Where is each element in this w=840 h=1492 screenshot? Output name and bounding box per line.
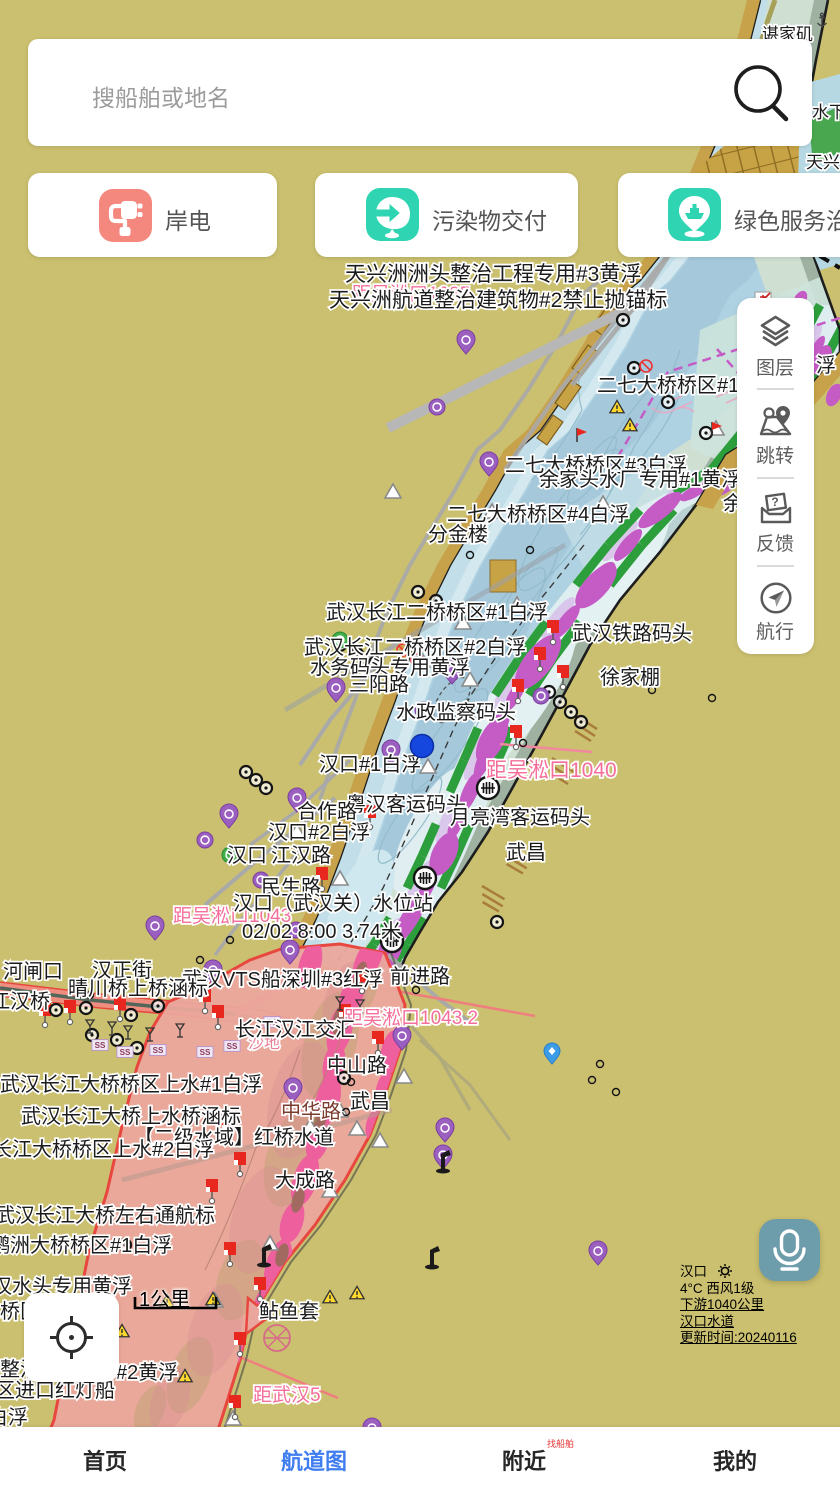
svg-text:武汉VTS船深圳#3红浮: 武汉VTS船深圳#3红浮 — [182, 968, 383, 991]
svg-text:前进路: 前进路 — [390, 965, 450, 988]
svg-text:水政监察码头: 水政监察码头 — [396, 701, 516, 724]
svg-text:浮: 浮 — [816, 354, 836, 377]
svg-text:武汉铁路码头: 武汉铁路码头 — [572, 622, 692, 645]
svg-text:江汉桥: 江汉桥 — [0, 990, 50, 1013]
svg-text:粤汉客运码头: 粤汉客运码头 — [346, 793, 466, 816]
svg-text:距武汉5: 距武汉5 — [253, 1384, 321, 1406]
svg-text:晴川桥上桥涵标: 晴川桥上桥涵标 — [68, 977, 208, 1000]
svg-text:江汉路: 江汉路 — [271, 844, 331, 867]
svg-text:白浮: 白浮 — [0, 1406, 28, 1429]
svg-text:长江汉江交汇: 长江汉江交汇 — [235, 1018, 355, 1041]
svg-text:02/02 8:00 3.74米: 02/02 8:00 3.74米 — [242, 920, 401, 943]
svg-text:汉口#2白浮: 汉口#2白浮 — [268, 821, 370, 844]
svg-text:余家头水厂专用#1黄浮: 余家头水厂专用#1黄浮 — [539, 468, 741, 491]
svg-text:鲇鱼套: 鲇鱼套 — [259, 1300, 319, 1323]
svg-text:三阳路: 三阳路 — [349, 673, 409, 696]
svg-text:中华路: 中华路 — [281, 1100, 341, 1123]
svg-text:区进口红灯船: 区进口红灯船 — [0, 1379, 115, 1402]
svg-text:分金楼: 分金楼 — [428, 523, 488, 546]
svg-text:汉口: 汉口 — [227, 844, 267, 867]
svg-text:鹦洲大桥桥区#1白浮: 鹦洲大桥桥区#1白浮 — [0, 1234, 172, 1257]
svg-text:二七大桥桥区#4白浮: 二七大桥桥区#4白浮 — [447, 503, 629, 526]
svg-text:#2黄浮: #2黄浮 — [116, 1361, 178, 1384]
svg-text:武昌: 武昌 — [506, 841, 546, 864]
svg-text:距吴淞口1043.2: 距吴淞口1043.2 — [344, 1007, 478, 1029]
svg-text:武昌: 武昌 — [350, 1090, 390, 1113]
svg-text:武汉长江二桥桥区#1白浮: 武汉长江二桥桥区#1白浮 — [326, 601, 548, 624]
svg-text:河闸口: 河闸口 — [3, 960, 63, 983]
svg-text:水下: 水下 — [812, 103, 840, 122]
svg-text:天兴洲: 天兴洲 — [806, 153, 840, 172]
svg-text:长江大桥桥区上水#2白浮: 长江大桥桥区上水#2白浮 — [0, 1138, 214, 1161]
svg-text:武汉长江大桥上水桥涵标: 武汉长江大桥上水桥涵标 — [21, 1105, 241, 1128]
svg-text:武汉长江大桥左右通航标: 武汉长江大桥左右通航标 — [0, 1204, 215, 1227]
svg-text:中山路: 中山路 — [327, 1054, 387, 1077]
svg-text:武汉长江大桥桥区上水#1白浮: 武汉长江大桥桥区上水#1白浮 — [0, 1073, 262, 1096]
svg-text:大成路: 大成路 — [275, 1169, 335, 1192]
svg-text:武汉长江二桥桥区#2白浮: 武汉长江二桥桥区#2白浮 — [304, 636, 526, 659]
svg-text:合作路: 合作路 — [297, 800, 357, 823]
svg-text:徐家棚: 徐家棚 — [600, 666, 660, 689]
svg-text:汉口（武汉关）水位站: 汉口（武汉关）水位站 — [233, 892, 433, 915]
svg-text:?: ? — [771, 495, 778, 509]
svg-text:天兴洲洲头整治工程专用#3黄浮: 天兴洲洲头整治工程专用#3黄浮 — [345, 263, 641, 286]
svg-text:汉口#1白浮: 汉口#1白浮 — [319, 753, 421, 776]
svg-text:天兴洲航道整治建筑物#2禁止抛锚标: 天兴洲航道整治建筑物#2禁止抛锚标 — [329, 289, 667, 312]
svg-text:距吴淞口1040: 距吴淞口1040 — [486, 759, 617, 782]
svg-text:月亮湾客运码头: 月亮湾客运码头 — [450, 806, 590, 829]
